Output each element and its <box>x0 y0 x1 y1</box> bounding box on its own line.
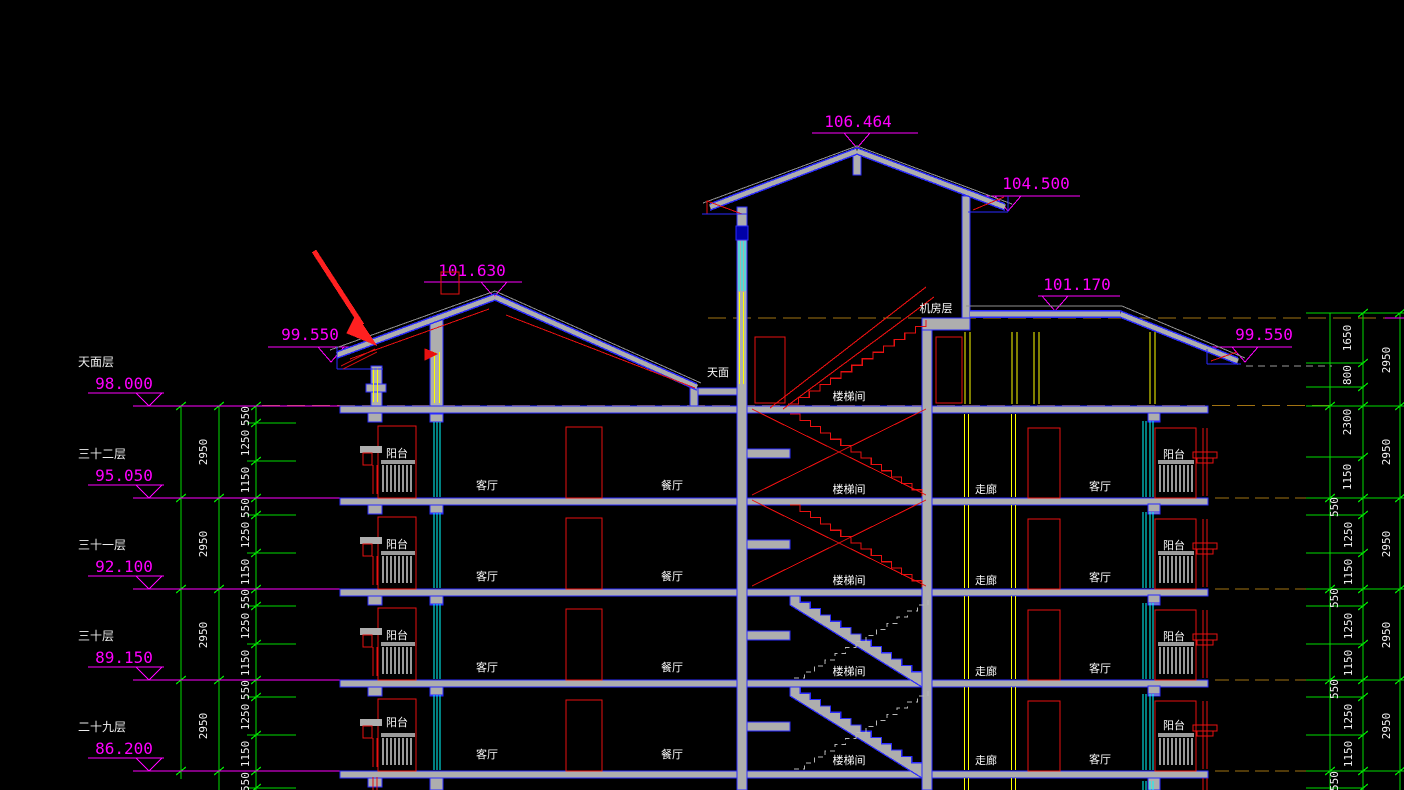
left-wall-roof <box>430 317 443 406</box>
dim-text: 2950 <box>197 531 210 558</box>
door-opening <box>1028 519 1060 589</box>
dim-text: 550 <box>239 498 252 518</box>
dim-text: 2950 <box>1380 531 1393 558</box>
room-label: 餐厅 <box>661 569 683 583</box>
door-opening <box>1028 701 1060 771</box>
dim-text: 1150 <box>239 650 252 677</box>
room-label: 客厅 <box>1089 479 1111 493</box>
dim-text: 2950 <box>197 713 210 740</box>
wall-stub <box>1148 413 1160 421</box>
room-label: 客厅 <box>1089 752 1111 766</box>
roof-band <box>710 151 857 207</box>
room-label: 餐厅 <box>661 660 683 674</box>
capital <box>366 384 386 392</box>
roof-edge <box>857 148 1005 204</box>
railing-top <box>1158 733 1194 737</box>
room-label: 客厅 <box>476 747 498 761</box>
door-opening <box>1028 428 1060 498</box>
dim-text: 2300 <box>1341 409 1354 436</box>
room-label: 餐厅 <box>661 478 683 492</box>
dim-text: 1250 <box>239 613 252 640</box>
balcony-detail <box>1197 549 1213 554</box>
dim-text: 1150 <box>239 741 252 768</box>
room-label: 阳台 <box>1163 538 1185 552</box>
wall-stub <box>430 778 443 790</box>
balcony-capital <box>1193 725 1217 731</box>
center-wall <box>737 207 747 790</box>
balcony-detail <box>363 544 372 556</box>
stair-landing <box>747 631 790 640</box>
room-label: 阳台 <box>1163 629 1185 643</box>
beam <box>368 687 382 696</box>
floor-elevation: 92.100 <box>95 557 153 576</box>
dim-text: 800 <box>1341 365 1354 385</box>
low-roof-strip <box>697 388 737 395</box>
dim-text: 2950 <box>1380 713 1393 740</box>
dim-text: 550 <box>239 589 252 609</box>
room-label: 阳台 <box>386 446 408 460</box>
wall-stub <box>1148 504 1160 512</box>
elev-marker-triangle <box>844 133 870 148</box>
roof-edge <box>710 148 857 204</box>
railing-top <box>381 642 415 646</box>
roof-edge <box>857 154 1005 210</box>
balcony-capital <box>360 537 382 544</box>
dim-text: 1150 <box>1342 559 1355 586</box>
ceiling-line <box>506 315 695 388</box>
room-label: 走廊 <box>975 482 997 496</box>
railing-top <box>381 733 415 737</box>
floor-elevation: 86.200 <box>95 739 153 758</box>
floor-elevation: 89.150 <box>95 648 153 667</box>
room-label: 阳台 <box>386 715 408 729</box>
dim-text: 550 <box>1328 497 1341 517</box>
beam <box>368 778 382 787</box>
balcony-capital <box>1193 634 1217 640</box>
elevation-value: 104.500 <box>1002 174 1069 193</box>
room-label: 阳台 <box>386 628 408 642</box>
balcony-capital <box>360 719 382 726</box>
room-label: 阳台 <box>1163 447 1185 461</box>
tower-window-head <box>736 226 748 240</box>
floor-name: 三十层 <box>78 629 114 643</box>
elevation-value: 101.630 <box>438 261 505 280</box>
balcony-capital <box>1193 543 1217 549</box>
dim-text: 1150 <box>1341 464 1354 491</box>
cad-section-drawing[interactable]: 2950295029502950550125011505501250115055… <box>0 0 1404 790</box>
room-label: 楼梯间 <box>833 573 866 587</box>
balcony-detail <box>1197 731 1213 736</box>
stair-landing <box>747 722 790 731</box>
room-label: 楼梯间 <box>833 389 866 403</box>
dim-text: 550 <box>239 680 252 700</box>
room-label: 客厅 <box>476 660 498 674</box>
low-roof-wall <box>690 388 698 406</box>
dim-text: 1150 <box>1342 741 1355 768</box>
balcony-capital <box>360 628 382 635</box>
balcony-detail <box>363 726 372 738</box>
room-label: 天面 <box>707 367 729 379</box>
railing-top <box>381 460 415 464</box>
door-opening <box>566 427 602 498</box>
dim-text: 2950 <box>1380 439 1393 466</box>
dim-text: 1150 <box>239 559 252 586</box>
floor-name: 三十一层 <box>78 538 126 552</box>
dim-text: 1150 <box>239 467 252 494</box>
machine-slab <box>922 318 970 330</box>
level-marker-triangle <box>136 667 162 680</box>
stair-landing <box>747 540 790 549</box>
floor-name: 三十二层 <box>78 447 126 461</box>
dim-text: 1250 <box>239 522 252 549</box>
wall-stub <box>1148 595 1160 603</box>
room-label: 走廊 <box>975 573 997 587</box>
room-label: 机房层 <box>920 301 953 315</box>
floor-elevation: 98.000 <box>95 374 153 393</box>
dim-text: 550 <box>1328 588 1341 608</box>
dim-text: 1250 <box>1342 613 1355 640</box>
balcony-capital <box>360 446 382 453</box>
elevation-value: 106.464 <box>824 112 891 131</box>
door-opening <box>566 609 602 680</box>
door-opening <box>755 337 785 403</box>
roof-band <box>857 151 1005 207</box>
door-opening <box>936 337 962 403</box>
room-label: 客厅 <box>1089 570 1111 584</box>
roof-band <box>495 297 697 387</box>
elev-marker-triangle <box>1042 296 1068 311</box>
elevation-value: 101.170 <box>1043 275 1110 294</box>
roof-edge <box>495 294 697 384</box>
room-label: 阳台 <box>1163 718 1185 732</box>
door-opening <box>566 518 602 589</box>
floor-name: 二十九层 <box>78 720 126 734</box>
room-label: 楼梯间 <box>833 482 866 496</box>
floor-name: 天面层 <box>78 355 114 369</box>
dim-text: 550 <box>1328 771 1341 790</box>
roof-felt <box>703 146 857 203</box>
room-label: 走廊 <box>975 664 997 678</box>
level-marker-triangle <box>136 758 162 771</box>
roof-edge <box>710 154 857 210</box>
dim-text: 2950 <box>197 622 210 649</box>
floor-slab <box>340 589 1208 596</box>
balcony-detail <box>363 635 372 647</box>
level-marker-triangle <box>136 576 162 589</box>
room-label: 客厅 <box>476 569 498 583</box>
floor-elevation: 95.050 <box>95 466 153 485</box>
balcony-capital <box>1193 452 1217 458</box>
beam <box>368 505 382 514</box>
dim-text: 2950 <box>197 439 210 466</box>
wall-stub <box>1148 686 1160 694</box>
dim-text: 1250 <box>1342 522 1355 549</box>
stair-landing <box>747 449 790 458</box>
dim-text: 550 <box>1328 679 1341 699</box>
room-label: 餐厅 <box>661 747 683 761</box>
building-section-svg: 2950295029502950550125011505501250115055… <box>0 0 1404 790</box>
floor-slab <box>340 680 1208 687</box>
floor-slab <box>340 498 1208 505</box>
room-label: 阳台 <box>386 537 408 551</box>
stair-railing <box>770 287 926 408</box>
roof-felt <box>495 291 701 383</box>
wall-stub <box>430 505 443 513</box>
annotation-arrow-shaft <box>314 251 362 325</box>
dim-text: 2950 <box>1380 347 1393 374</box>
floor-slab <box>340 406 1208 413</box>
railing-top <box>381 551 415 555</box>
dim-text: 1250 <box>1342 704 1355 731</box>
tower-wall <box>962 196 970 320</box>
dim-text: 1650 <box>1341 325 1354 352</box>
dim-text: 550 <box>239 772 252 790</box>
dim-text: 2950 <box>1380 622 1393 649</box>
dim-text: 550 <box>239 406 252 426</box>
elevation-value: 99.550 <box>1235 325 1293 344</box>
room-label: 客厅 <box>1089 661 1111 675</box>
balcony-detail <box>1197 640 1213 645</box>
room-label: 楼梯间 <box>833 753 866 767</box>
room-label: 楼梯间 <box>833 664 866 678</box>
balcony-detail <box>363 453 372 465</box>
roof-edge <box>1120 317 1238 364</box>
floor-slab <box>340 771 1208 778</box>
wall-stub <box>430 687 443 695</box>
roof-band <box>1120 314 1238 361</box>
balcony-detail <box>1197 458 1213 463</box>
room-label: 走廊 <box>975 753 997 767</box>
elevation-value: 99.550 <box>281 325 339 344</box>
beam <box>368 596 382 605</box>
roof-felt <box>857 146 1012 204</box>
annotation-arrow-head <box>347 315 376 345</box>
dim-text: 1250 <box>239 704 252 731</box>
dim-text: 1150 <box>1342 650 1355 677</box>
room-label: 客厅 <box>476 478 498 492</box>
door-opening <box>566 700 602 771</box>
level-marker-triangle <box>136 393 162 406</box>
beam <box>368 413 382 422</box>
stair-wall <box>922 318 932 790</box>
level-marker-triangle <box>136 485 162 498</box>
wall-stub <box>430 414 443 422</box>
roof-felt <box>1122 306 1245 358</box>
dim-text: 1250 <box>239 430 252 457</box>
door-opening <box>1028 610 1060 680</box>
wall-stub <box>430 596 443 604</box>
